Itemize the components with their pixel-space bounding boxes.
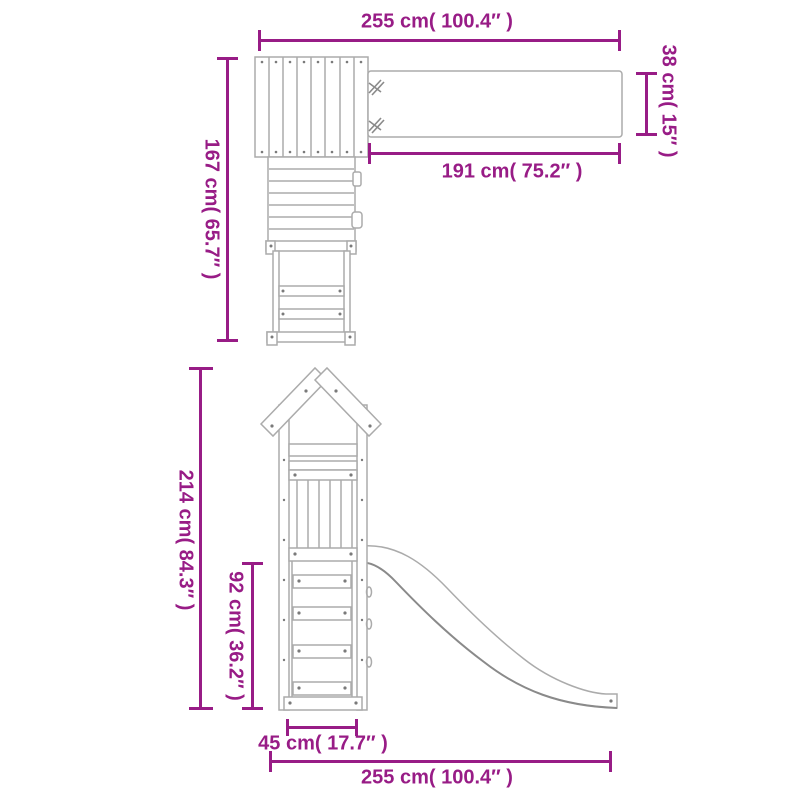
dimension-tick: [189, 367, 213, 370]
dim-line-plan-total-width: [258, 39, 621, 42]
dimension-tick: [242, 707, 263, 710]
product-dimension-diagram: 255 cm( 100.4″ ) 167 cm( 65.7″ ) 38 cm( …: [0, 0, 800, 800]
balcony-rails: [289, 444, 357, 470]
dimension-tick: [618, 30, 621, 51]
plan-view-drawing: [0, 0, 800, 360]
dim-line-front-total-height: [199, 367, 202, 710]
dimension-tick: [618, 143, 621, 164]
dim-line-beam-length: [368, 152, 621, 155]
slide: [358, 546, 617, 708]
swing-beam-top-view: [368, 71, 622, 137]
dim-line-plan-total-depth: [226, 57, 229, 342]
dimension-tick: [258, 30, 261, 51]
dim-line-beam-depth: [645, 72, 648, 136]
balustrade-panel: [289, 470, 357, 561]
dimension-tick: [217, 57, 238, 60]
dimension-tick: [242, 562, 263, 565]
dim-line-ladder-width: [286, 726, 358, 729]
dim-label-beam-depth: 38 cm( 15″ ): [657, 45, 680, 158]
ladder-top-view: [266, 241, 356, 345]
roof-front-view: [261, 368, 381, 436]
platform-top-view: [268, 157, 362, 242]
dim-label-front-total-height: 214 cm( 84.3″ ): [174, 470, 197, 611]
dimension-tick: [636, 133, 657, 136]
dimension-tick: [189, 707, 213, 710]
front-view-drawing: [0, 360, 800, 800]
dim-label-platform-height: 92 cm( 36.2″ ): [224, 571, 247, 701]
dim-label-plan-total-width: 255 cm( 100.4″ ): [361, 11, 513, 34]
dim-label-plan-total-depth: 167 cm( 65.7″ ): [200, 139, 223, 280]
dim-line-platform-height: [251, 562, 254, 710]
dimension-tick: [368, 143, 371, 164]
latch-detail: [352, 212, 362, 228]
dimension-tick: [269, 751, 272, 772]
dimension-tick: [217, 339, 238, 342]
latch-detail: [353, 172, 361, 186]
dim-label-front-total-width: 255 cm( 100.4″ ): [361, 767, 513, 790]
dimension-tick: [609, 751, 612, 772]
dim-line-front-total-width: [269, 760, 612, 763]
dim-label-beam-length: 191 cm( 75.2″ ): [442, 161, 583, 184]
dim-label-ladder-width: 45 cm( 17.7″ ): [258, 733, 388, 756]
roof-top-view: [255, 57, 368, 157]
dimension-tick: [636, 72, 657, 75]
